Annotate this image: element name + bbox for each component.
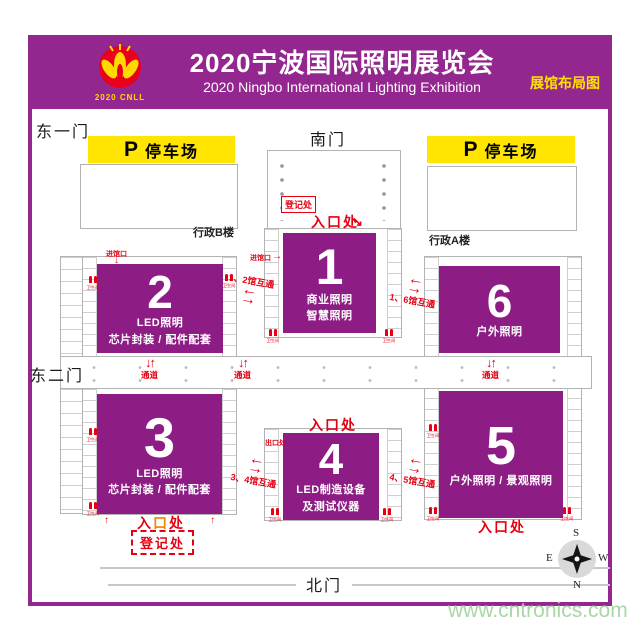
restroom-icon: 卫生间 bbox=[558, 503, 576, 522]
hall-number: 4 bbox=[319, 438, 343, 482]
gate-north-label: 北门 bbox=[296, 572, 352, 596]
corridor-band bbox=[60, 356, 592, 389]
hall-number: 6 bbox=[487, 278, 513, 324]
passage-marker: 通道 bbox=[234, 356, 251, 381]
compass-north-label: N bbox=[573, 579, 581, 591]
arrow-right-icon bbox=[272, 251, 282, 262]
restroom-icon: 卫生间 bbox=[424, 420, 442, 439]
road-line bbox=[108, 584, 610, 586]
hall-category: 智慧照明 bbox=[307, 308, 353, 325]
page-title: 2020宁波国际照明展览会 bbox=[158, 49, 526, 79]
hall-category: 户外照明 / 景观照明 bbox=[450, 473, 553, 490]
compass-rose bbox=[558, 540, 596, 578]
restroom-icon: 卫生间 bbox=[380, 325, 398, 344]
arrow-up-icon bbox=[243, 355, 248, 370]
hall-2: 2 LED照明 芯片封装 / 配件配套 bbox=[97, 264, 223, 353]
hall-category: 及测试仪器 bbox=[302, 499, 360, 516]
arrow-up-icon bbox=[104, 515, 109, 526]
arrow-up-icon bbox=[491, 355, 496, 370]
parking-banner-left: P 停车场 bbox=[88, 136, 235, 163]
hall-6: 6 户外照明 bbox=[439, 266, 560, 353]
layout-map-label: 展馆布局图 bbox=[530, 73, 600, 93]
entrance-label-hall4: 入口处 bbox=[309, 415, 357, 435]
header-titles: 2020宁波国际照明展览会 2020 Ningbo International … bbox=[158, 49, 526, 96]
exit-label: 出口处 bbox=[265, 438, 286, 448]
exhibition-layout-map: 2020 CNLL 2020宁波国际照明展览会 2020 Ningbo Inte… bbox=[0, 0, 640, 640]
parking-p-icon: P bbox=[463, 138, 477, 162]
hall-gate-label: 进馆口 bbox=[250, 253, 271, 263]
passage-marker: 通道 bbox=[141, 356, 158, 381]
parking-banner-right: P 停车场 bbox=[427, 136, 575, 163]
hall-category: 商业照明 bbox=[307, 292, 353, 309]
gate-east2-label: 东二门 bbox=[30, 362, 84, 386]
pillar-dots bbox=[380, 159, 388, 221]
parking-label: 停车场 bbox=[145, 138, 199, 162]
restroom-icon: 卫生间 bbox=[424, 503, 442, 522]
passage-label: 通道 bbox=[141, 369, 158, 381]
compass-west-label: W bbox=[598, 552, 608, 564]
admin-building-b-outline bbox=[80, 164, 238, 229]
compass-star-icon bbox=[561, 543, 593, 575]
parking-p-icon: P bbox=[124, 138, 138, 162]
gate-east1-label: 东一门 bbox=[36, 118, 90, 142]
gate-south-label: 南门 bbox=[310, 126, 346, 150]
registration-box-south: 登记处 bbox=[281, 196, 316, 213]
hall-category: 芯片封装 / 配件配套 bbox=[109, 332, 212, 349]
hall-category: LED照明 bbox=[137, 315, 184, 332]
restroom-icon: 卫生间 bbox=[266, 504, 284, 523]
hall-5: 5 户外照明 / 景观照明 bbox=[439, 391, 563, 518]
hall-category: 户外照明 bbox=[477, 324, 523, 341]
arrow-up-icon bbox=[210, 515, 215, 526]
hall-number: 3 bbox=[144, 410, 175, 466]
restroom-icon: 卫生间 bbox=[84, 498, 102, 517]
entrance-label-hall5: 入口处 bbox=[478, 517, 526, 537]
passage-marker: 通道 bbox=[482, 356, 499, 381]
parking-label: 停车场 bbox=[485, 138, 539, 162]
restroom-icon: 卫生间 bbox=[84, 424, 102, 443]
hall-category: LED制造设备 bbox=[296, 482, 366, 499]
header-banner: 2020 CNLL 2020宁波国际照明展览会 2020 Ningbo Inte… bbox=[28, 35, 612, 109]
hall-number: 1 bbox=[316, 242, 344, 292]
passage-label: 通道 bbox=[234, 369, 251, 381]
passage-label: 通道 bbox=[482, 369, 499, 381]
admin-building-b-label: 行政B楼 bbox=[193, 224, 234, 240]
arrow-down-icon bbox=[114, 255, 119, 266]
page-subtitle: 2020 Ningbo International Lighting Exhib… bbox=[158, 79, 526, 95]
hall-3: 3 LED照明 芯片封装 / 配件配套 bbox=[97, 394, 222, 514]
hall-category: 芯片封装 / 配件配套 bbox=[108, 482, 211, 499]
restroom-icon: 卫生间 bbox=[84, 272, 102, 291]
hall-4: 4 LED制造设备 及测试仪器 bbox=[283, 433, 379, 520]
restroom-icon: 卫生间 bbox=[378, 504, 396, 523]
hall-category: LED照明 bbox=[136, 466, 183, 483]
logo-caption: 2020 CNLL bbox=[82, 93, 158, 102]
compass-east-label: E bbox=[546, 552, 553, 564]
arrow-southeast-icon bbox=[352, 214, 363, 230]
exhibition-logo: 2020 CNLL bbox=[82, 43, 158, 102]
admin-building-a-label: 行政A楼 bbox=[429, 232, 470, 248]
hall-number: 2 bbox=[147, 269, 173, 315]
admin-building-a-outline bbox=[427, 166, 577, 231]
registration-box-north: 登记处 bbox=[131, 530, 194, 555]
hall-number: 5 bbox=[486, 419, 516, 473]
compass-south-label: S bbox=[573, 527, 579, 539]
restroom-icon: 卫生间 bbox=[264, 325, 282, 344]
arrow-up-icon bbox=[150, 355, 155, 370]
hall-1: 1 商业照明 智慧照明 bbox=[283, 233, 376, 333]
road-line bbox=[100, 567, 610, 569]
arrow-right-icon bbox=[239, 289, 258, 309]
watermark: www.cntronics.com bbox=[448, 599, 628, 623]
flower-logo-icon bbox=[89, 43, 151, 91]
